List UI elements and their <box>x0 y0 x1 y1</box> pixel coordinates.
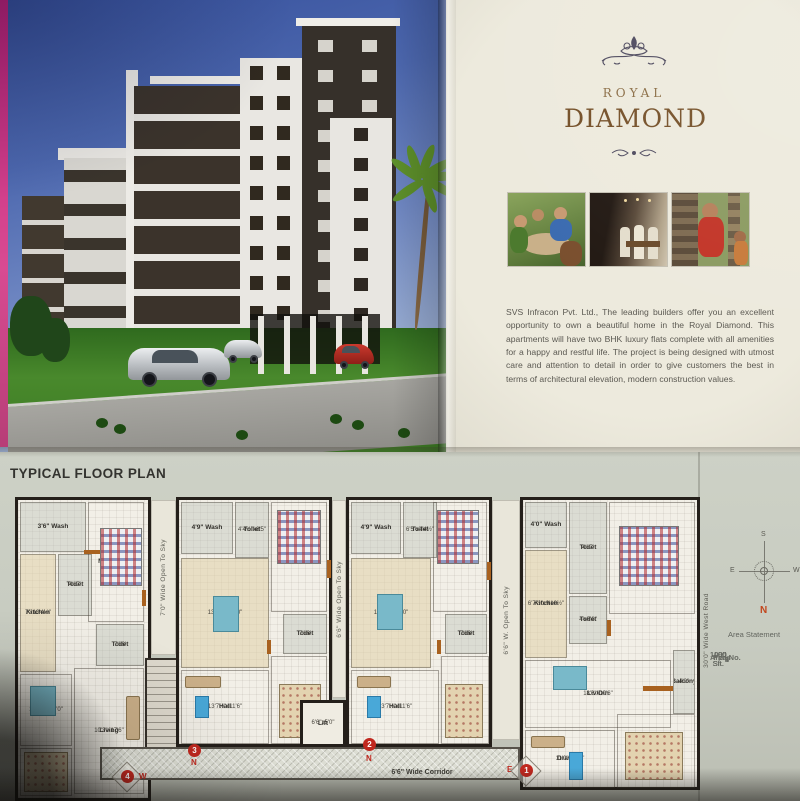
photo-vignette <box>0 0 446 452</box>
red-shirt-shape <box>698 217 724 257</box>
photo-dining-interior <box>590 193 667 266</box>
floor-plan-title: TYPICAL FLOOR PLAN <box>10 466 166 481</box>
door-marker <box>267 640 271 654</box>
room-dim: 13'7½"x11'6" <box>378 704 412 711</box>
bed-furniture <box>619 526 679 586</box>
person-shape <box>532 209 544 221</box>
bed-furniture <box>437 510 479 564</box>
room-dim: 7'x6' <box>460 631 472 638</box>
ceiling-light <box>648 199 651 202</box>
open-to-sky-label: 7'0" Wide Open To Sky <box>160 539 167 616</box>
flat3-toilet-b: Toilet7'x6' <box>445 614 487 654</box>
lift-shaft: Lift 6'6"x5'0" <box>300 700 346 747</box>
door-marker <box>487 562 491 580</box>
building-photo <box>0 0 446 452</box>
dining-table-furniture <box>30 686 56 716</box>
bed-furniture <box>24 752 68 792</box>
bed-furniture <box>445 684 483 738</box>
entrance-marker-3: 3 <box>188 744 201 757</box>
area-cell: 1095 Sft. <box>710 650 727 668</box>
shirt-shape <box>510 227 528 253</box>
flat4-toilet-b: Toilet4'x6'6" <box>569 596 607 644</box>
room-dim: 4'x7' <box>69 582 81 589</box>
room-dim: 6'7½"x9'10½" <box>528 601 564 608</box>
corridor: 6'6" Wide Corridor <box>100 747 520 780</box>
bed-furniture <box>625 732 683 780</box>
door-marker <box>437 640 441 654</box>
sofa-furniture <box>126 696 140 740</box>
flat2-toilet-a: Toilet4'4½"x6'5" <box>235 502 269 558</box>
staircase <box>145 658 178 752</box>
entrance-marker-2: 2 <box>363 738 376 751</box>
room-dim: 4'x6'6" <box>579 617 596 624</box>
photo-family-garden <box>508 193 585 266</box>
door-marker <box>607 620 611 636</box>
room-dim: 7'x6' <box>299 631 311 638</box>
entrance-marker-4: 4 <box>121 770 134 783</box>
flat-3-plan: 4'9" Wash Toilet6'5"x4'4½" M.Bedroom10'6… <box>346 497 492 747</box>
room-dim: 10'3"x17'6" <box>94 728 124 735</box>
sofa-furniture <box>357 676 391 688</box>
open-to-sky-label: 6'6" Wide Open To Sky <box>336 561 343 638</box>
shirt-shape <box>734 241 748 265</box>
aquarium-accent <box>195 696 209 718</box>
compass-south: S <box>761 531 766 538</box>
compass-north: N <box>760 605 767 616</box>
room-label: 4'9" Wash <box>361 524 392 531</box>
table-shape <box>626 241 660 247</box>
flat4-kitchen: Kitchen6'7½"x9'10½" <box>525 550 567 658</box>
door-marker <box>84 550 100 554</box>
corridor-label: 6'6" Wide Corridor <box>332 769 512 776</box>
entrance-marker-1: 1 <box>520 764 533 777</box>
flat4-balcony: 4'0"Balcony <box>673 650 695 714</box>
flat2-wash: 4'9" Wash <box>181 502 233 554</box>
photo-kids-playing <box>672 193 749 266</box>
brochure-scan: ROYAL DIAMOND <box>0 0 800 801</box>
ceiling-light <box>624 199 627 202</box>
flat4-toilet-a: Toilet4'x7' <box>569 502 607 594</box>
door-marker <box>142 590 146 606</box>
room-dim: 13'7½"x11'6" <box>208 704 242 711</box>
room-label: Balcony <box>673 678 695 685</box>
room-dim: 4'4½"x6'5" <box>238 527 266 534</box>
shelf-columns <box>672 193 698 266</box>
dining-table-furniture <box>377 594 403 630</box>
room-label: 3'6" Wash <box>38 523 69 530</box>
direction-letter: N <box>366 754 372 763</box>
bed-furniture <box>100 528 142 586</box>
page-seam <box>0 447 800 457</box>
road-label-text: 30'0" Wide West Road <box>703 593 710 668</box>
bed-furniture <box>277 510 321 564</box>
direction-letter: N <box>191 758 197 767</box>
flat1-toilet-a: Toilet4'x7' <box>58 554 92 616</box>
compass-east: E <box>730 567 735 574</box>
ceiling-light <box>636 198 639 201</box>
aquarium-accent <box>569 752 583 780</box>
room-dim: 7'x10'4½" <box>25 610 51 617</box>
shirt-shape <box>550 219 572 241</box>
door-marker <box>327 560 331 578</box>
flat1-wash: 3'6" Wash <box>20 502 86 552</box>
room-dim: 7'x6' <box>114 642 126 649</box>
dining-table-furniture <box>553 666 587 690</box>
flat1-toilet-b: Toilet7'x6' <box>96 624 144 666</box>
compass-rose: S E W N <box>733 533 797 619</box>
flat3-toilet-a: Toilet6'5"x4'4½" <box>403 502 437 558</box>
open-to-sky-label: 6'6" W. Open To Sky <box>503 586 510 655</box>
intro-paragraph: SVS Infracon Pvt. Ltd., The leading buil… <box>506 306 774 386</box>
room-label: 4'0" Wash <box>531 521 562 528</box>
open-to-sky-strip-2: 6'6" Wide Open To Sky <box>332 500 346 698</box>
lift-dim: 6'6"x5'0" <box>312 720 335 727</box>
flat2-toilet-b: Toilet7'x6' <box>283 614 327 654</box>
open-to-sky-strip-3: 6'6" W. Open To Sky <box>492 500 520 740</box>
room-label: 4'9" Wash <box>192 524 223 531</box>
flat-4-plan: 4'0" Wash Toilet4'x7' M.Bedroom10'9"x13'… <box>520 497 700 790</box>
dining-table-furniture <box>213 596 239 632</box>
door-marker <box>643 686 673 691</box>
direction-letter: W <box>139 772 147 781</box>
flat1-kitchen: Kitchen7'x10'4½" <box>20 554 56 672</box>
open-to-sky-strip-1: 7'0" Wide Open To Sky <box>151 500 176 655</box>
flat4-wash: 4'0" Wash <box>525 502 567 548</box>
shirt-shape <box>560 241 582 266</box>
room-dim: 6'5"x4'4½" <box>406 527 434 534</box>
brand-diamond: DIAMOND <box>564 104 704 133</box>
room-dim: 4'x7' <box>582 545 594 552</box>
brand-royal: ROYAL <box>584 86 684 100</box>
aquarium-accent <box>367 696 381 718</box>
sofa-furniture <box>531 736 565 748</box>
area-statement-title: Area Statement <box>712 630 796 639</box>
flat3-wash: 4'9" Wash <box>351 502 401 554</box>
compass-west: W <box>793 567 800 574</box>
compass-core <box>760 567 768 575</box>
room-dim: 18'6"x10'6" <box>583 691 613 698</box>
page-fold <box>438 0 456 452</box>
sofa-furniture <box>185 676 221 688</box>
